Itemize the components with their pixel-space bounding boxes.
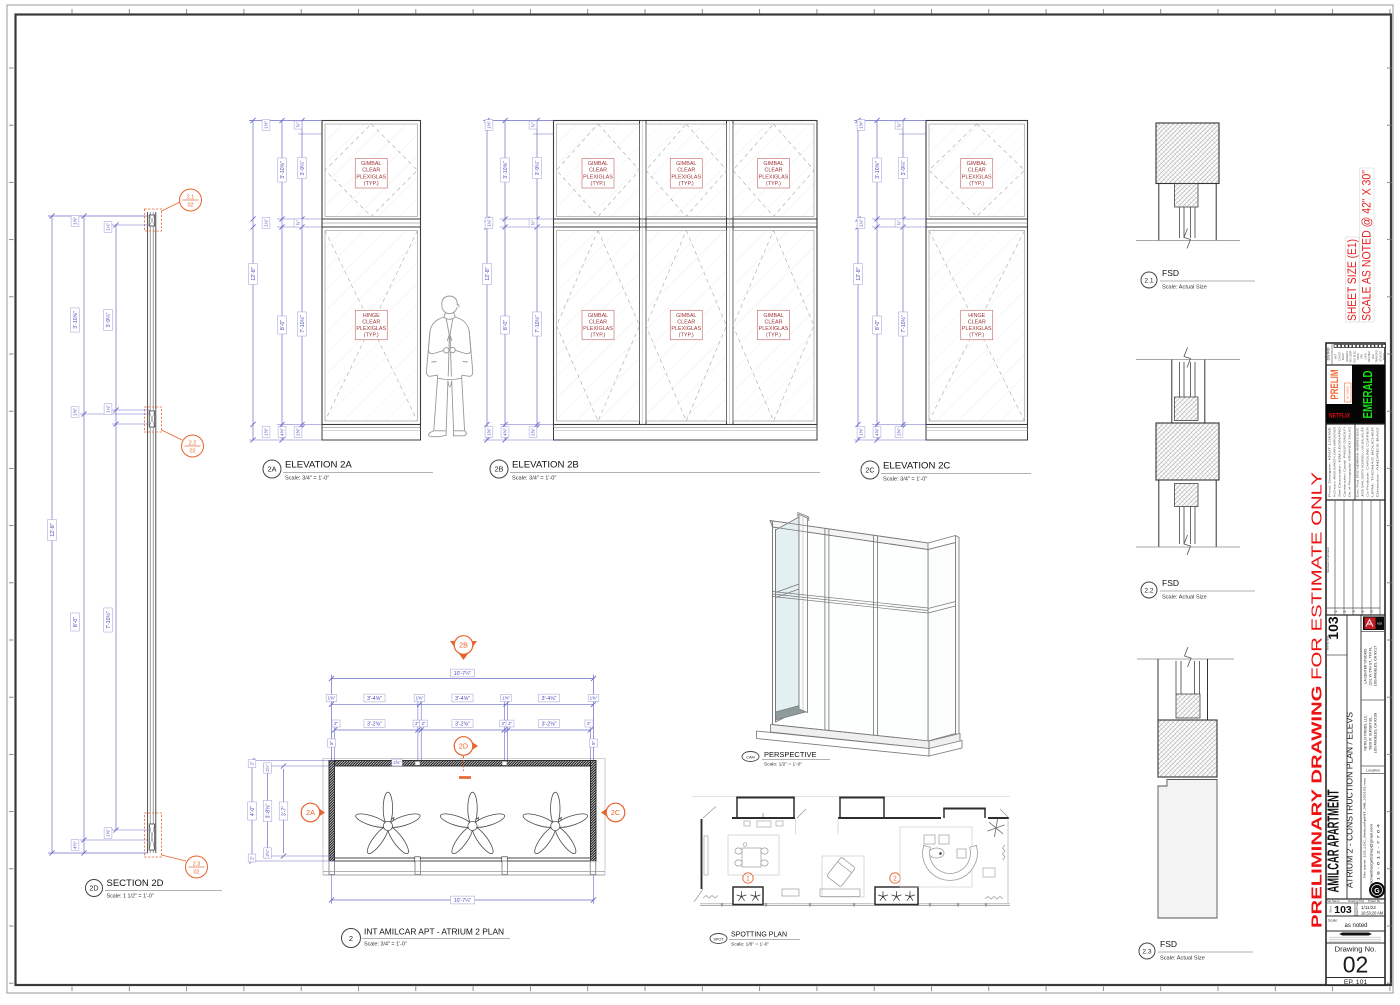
svg-text:8'-0": 8'-0" xyxy=(503,320,509,330)
svg-text:⅞": ⅞" xyxy=(897,122,902,128)
svg-text:CLEAR: CLEAR xyxy=(589,168,607,174)
svg-text:PLEXIGLAS: PLEXIGLAS xyxy=(759,326,789,332)
svg-text:Scale: 3/4" = 1'-0": Scale: 3/4" = 1'-0" xyxy=(512,476,556,482)
svg-text:ELEVATION 2B: ELEVATION 2B xyxy=(512,460,579,471)
svg-text:2": 2" xyxy=(334,721,338,726)
svg-text:2⅝": 2⅝" xyxy=(531,428,536,436)
svg-text:Scale:: Scale: xyxy=(1328,919,1338,923)
svg-text:Scale: 1/2" = 1'-0": Scale: 1/2" = 1'-0" xyxy=(764,762,802,768)
svg-text:as noted: as noted xyxy=(1344,923,1367,929)
svg-text:ART: ART xyxy=(1334,354,1338,360)
svg-text:3: 3 xyxy=(1352,611,1356,613)
svg-text:CLEAR: CLEAR xyxy=(968,319,986,325)
svg-text:3'-8⅝": 3'-8⅝" xyxy=(265,804,271,819)
svg-text:Set #: Set # xyxy=(1329,906,1333,913)
svg-text:1¼": 1¼" xyxy=(859,219,864,227)
svg-text:103: 103 xyxy=(1334,904,1352,916)
svg-text:GREENS: GREENS xyxy=(1345,351,1349,362)
svg-text:3'-2⅝": 3'-2⅝" xyxy=(455,721,470,727)
svg-text:8'-0": 8'-0" xyxy=(280,320,286,330)
svg-text:INT AMILCAR APT - ATRIUM 2 PLA: INT AMILCAR APT - ATRIUM 2 PLAN xyxy=(364,927,504,937)
svg-text:2D: 2D xyxy=(459,742,468,751)
svg-text:PLEXIGLAS: PLEXIGLAS xyxy=(962,174,992,180)
svg-text:10'-7¼": 10'-7¼" xyxy=(454,671,472,677)
svg-text:2": 2" xyxy=(422,721,426,726)
svg-text:Set Number: Set Number xyxy=(1326,635,1330,650)
svg-text:CLEAR: CLEAR xyxy=(362,168,380,174)
svg-text:02: 02 xyxy=(194,870,200,876)
svg-text:2": 2" xyxy=(508,721,512,726)
svg-text:3'-7": 3'-7" xyxy=(281,806,287,816)
svg-text:CAM: CAM xyxy=(746,755,754,759)
svg-text:2": 2" xyxy=(415,721,419,726)
svg-text:⅞": ⅞" xyxy=(531,220,536,226)
svg-text:5808 W. SUNSET BL.: 5808 W. SUNSET BL. xyxy=(1369,716,1373,749)
svg-text:1⅝": 1⅝" xyxy=(106,829,111,837)
svg-text:SPOTTING PLAN: SPOTTING PLAN xyxy=(731,932,787,939)
svg-text:PLEXIGLAS: PLEXIGLAS xyxy=(671,174,701,180)
svg-text:2: 2 xyxy=(1343,611,1347,613)
svg-text:Exec. Prod: ERIC NEWMAN, ANDR: Exec. Prod: ERIC NEWMAN, ANDRES BAIZ, xyxy=(1356,427,1360,497)
svg-text:VFX: VFX xyxy=(1360,354,1364,359)
svg-text:1⅝": 1⅝" xyxy=(73,217,78,225)
svg-text:PLEXIGLAS: PLEXIGLAS xyxy=(356,174,386,180)
svg-text:PLEXIGLAS: PLEXIGLAS xyxy=(759,174,789,180)
svg-text:(TYP.): (TYP.) xyxy=(364,333,379,339)
svg-text:(TYP.): (TYP.) xyxy=(766,181,781,187)
svg-text:michaelbudgebishop@gmail.com: michaelbudgebishop@gmail.com xyxy=(1370,824,1374,886)
svg-text:2.3: 2.3 xyxy=(193,862,201,868)
svg-text:Dir. of Photography: ARMANDO: Dir. of Photography: ARMANDO SALAS xyxy=(1347,427,1351,497)
svg-text:7'-10½": 7'-10½" xyxy=(105,611,112,629)
svg-text:2: 2 xyxy=(349,934,353,943)
svg-text:LOS ANGELES, CA 90028: LOS ANGELES, CA 90028 xyxy=(1374,713,1378,753)
svg-text:Location: Location xyxy=(1366,769,1380,773)
svg-text:1201 W. 5TH ST., 7TH FL.: 1201 W. 5TH ST., 7TH FL. xyxy=(1369,646,1373,686)
svg-text:7'-10½": 7'-10½" xyxy=(299,315,306,333)
svg-text:LA CENTER STUDIOS: LA CENTER STUDIOS xyxy=(1364,648,1368,684)
svg-text:Construction Coord: PHILIP GI: Construction Coord: PHILIP GINOLFI xyxy=(1342,427,1346,497)
svg-text:10:53:20 AM: 10:53:20 AM xyxy=(1361,910,1383,915)
svg-text:1⅝": 1⅝" xyxy=(264,428,269,436)
svg-text:2.1: 2.1 xyxy=(187,195,195,201)
svg-text:2.2: 2.2 xyxy=(1144,588,1153,595)
svg-text:Scale: Actual Size: Scale: Actual Size xyxy=(1162,285,1207,291)
svg-text:SPOT: SPOT xyxy=(713,937,724,941)
svg-text:⅞": ⅞" xyxy=(296,220,301,226)
svg-text:HINGE: HINGE xyxy=(968,313,985,319)
svg-text:PLEXIGLAS: PLEXIGLAS xyxy=(671,326,701,332)
svg-text:PERSPECTIVE: PERSPECTIVE xyxy=(764,750,817,759)
svg-text:CLEAR: CLEAR xyxy=(589,319,607,325)
svg-text:GIMBAL: GIMBAL xyxy=(588,161,608,167)
svg-text:HINGE: HINGE xyxy=(363,313,380,319)
svg-text:Prod. Designer: KNUT LOEWE: Prod. Designer: KNUT LOEWE xyxy=(1327,427,1331,497)
svg-text:PLEXIGLAS: PLEXIGLAS xyxy=(962,326,992,332)
svg-text:⅞": ⅞" xyxy=(296,122,301,128)
svg-text:1⅝": 1⅝" xyxy=(590,696,598,701)
svg-text:1⅝": 1⅝" xyxy=(502,696,510,701)
svg-text:7'-10½": 7'-10½" xyxy=(534,315,541,333)
svg-text:File name: 103_LOC_AmilcarAptI: File name: 103_LOC_AmilcarAptINT_MB_2201… xyxy=(1363,777,1367,878)
svg-text:3'-2⅝": 3'-2⅝" xyxy=(542,721,557,727)
svg-text:3'-9¼": 3'-9¼" xyxy=(106,313,112,328)
svg-text:RIG GRIP: RIG GRIP xyxy=(1349,350,1353,362)
svg-text:GIMBAL: GIMBAL xyxy=(676,313,696,319)
svg-text:2½": 2½" xyxy=(265,849,270,857)
svg-text:SECTION 2D: SECTION 2D xyxy=(107,878,164,889)
svg-text:Drawn By: Drawn By xyxy=(1368,899,1381,903)
svg-text:LOC: LOC xyxy=(1371,354,1375,359)
svg-text:Scale: 1 1/2" = 1'-0": Scale: 1 1/2" = 1'-0" xyxy=(107,894,154,900)
svg-text:2.2: 2.2 xyxy=(189,441,197,447)
svg-text:2⅝": 2⅝" xyxy=(296,428,301,436)
svg-text:2": 2" xyxy=(250,856,255,860)
svg-text:Date/Time: Date/Time xyxy=(1355,903,1359,916)
svg-text:(TYP.): (TYP.) xyxy=(679,333,694,339)
svg-text:SET DEC: SET DEC xyxy=(1367,351,1371,362)
svg-text:5": 5" xyxy=(329,741,334,745)
svg-text:GIMBAL: GIMBAL xyxy=(763,313,783,319)
svg-text:2": 2" xyxy=(587,721,591,726)
svg-text:ATRIUM 2 - CONSTRUCTION PLAN /: ATRIUM 2 - CONSTRUCTION PLAN / ELEVS xyxy=(1346,712,1355,888)
svg-text:AMILCAR APARTMENT: AMILCAR APARTMENT xyxy=(1326,789,1343,892)
svg-text:1⅝": 1⅝" xyxy=(416,696,424,701)
svg-text:EP. 101: EP. 101 xyxy=(1344,979,1368,986)
svg-text:Director: ANDRES BAIZ: Director: ANDRES BAIZ xyxy=(1376,427,1380,497)
svg-text:4½": 4½" xyxy=(73,841,78,849)
svg-text:2B: 2B xyxy=(459,641,468,650)
svg-text:3'-10⅝": 3'-10⅝" xyxy=(73,311,79,329)
svg-text:PAINT: PAINT xyxy=(1341,352,1345,360)
svg-text:2⅝": 2⅝" xyxy=(897,428,902,436)
svg-text:12'-8": 12'-8" xyxy=(856,267,862,280)
svg-text:GIMBAL: GIMBAL xyxy=(676,161,696,167)
svg-text:1⅝": 1⅝" xyxy=(264,121,269,129)
svg-text:Scale: Actual Size: Scale: Actual Size xyxy=(1162,595,1207,601)
svg-text:5: 5 xyxy=(1370,611,1374,613)
svg-text:(TYP.): (TYP.) xyxy=(679,181,694,187)
svg-text:1¼": 1¼" xyxy=(264,219,269,227)
svg-text:2A: 2A xyxy=(306,808,315,817)
svg-text:Revision Comment: Revision Comment xyxy=(1326,547,1330,573)
svg-text:PLEXIGLAS: PLEXIGLAS xyxy=(356,326,386,332)
svg-text:UPM: THOMAS BOUCHER: UPM: THOMAS BOUCHER xyxy=(1371,425,1375,497)
svg-text:CLEAR: CLEAR xyxy=(677,168,695,174)
svg-text:CAM: CAM xyxy=(1363,354,1367,360)
svg-text:2⅝": 2⅝" xyxy=(393,760,401,765)
svg-text:FSD: FSD xyxy=(1160,939,1177,949)
svg-text:TRANSPO: TRANSPO xyxy=(1375,350,1379,363)
svg-text:2½": 2½" xyxy=(265,764,270,772)
svg-text:⅞": ⅞" xyxy=(531,122,536,128)
svg-text:1¼": 1¼" xyxy=(106,223,111,231)
svg-text:02: 02 xyxy=(188,203,194,209)
svg-text:3'-9¼": 3'-9¼" xyxy=(535,161,541,176)
svg-text:ELEVATION 2A: ELEVATION 2A xyxy=(285,460,352,471)
svg-text:CLEAR: CLEAR xyxy=(765,168,783,174)
svg-text:4⅝": 4⅝" xyxy=(503,428,508,436)
svg-text:STUNTS: STUNTS xyxy=(1378,351,1382,362)
svg-text:NETFLIX PRODS. LLC: NETFLIX PRODS. LLC xyxy=(1364,715,1368,751)
svg-text:GIMBAL: GIMBAL xyxy=(967,161,987,167)
svg-text:SPFX: SPFX xyxy=(1356,353,1360,360)
svg-text:2.1: 2.1 xyxy=(1144,278,1153,285)
svg-text:02: 02 xyxy=(190,449,196,455)
svg-text:CLEAR: CLEAR xyxy=(677,319,695,325)
svg-text:Art Directors: JAKUB DURKOTH,: Art Directors: JAKUB DURKOTH, GARY WARCH… xyxy=(1332,426,1336,497)
svg-text:1¼": 1¼" xyxy=(106,405,111,413)
svg-text:3'-9¼": 3'-9¼" xyxy=(901,161,907,176)
svg-text:1⅝": 1⅝" xyxy=(487,121,492,129)
svg-text:PRELIM: PRELIM xyxy=(1329,370,1341,400)
svg-text:3'-4⅝": 3'-4⅝" xyxy=(542,696,557,702)
svg-text:2.3: 2.3 xyxy=(1142,949,1151,956)
svg-text:7'-10½": 7'-10½" xyxy=(900,315,907,333)
svg-text:⅞": ⅞" xyxy=(897,220,902,226)
svg-text:2": 2" xyxy=(502,721,506,726)
svg-text:3'-2⅝": 3'-2⅝" xyxy=(367,721,382,727)
svg-text:PLEXIGLAS: PLEXIGLAS xyxy=(583,174,613,180)
svg-text:(TYP.): (TYP.) xyxy=(766,333,781,339)
svg-text:GIMBAL: GIMBAL xyxy=(588,313,608,319)
svg-text:10'-7¼": 10'-7¼" xyxy=(454,898,472,904)
svg-text:3'-10⅝": 3'-10⅝" xyxy=(503,161,509,179)
svg-text:Set Name: Set Name xyxy=(1327,899,1340,903)
svg-text:JOSE IVAN, DEPTH RODRIGO, LUIS: JOSE IVAN, DEPTH RODRIGO, LUIS BALAGUER xyxy=(1361,426,1365,497)
svg-text:LOS ANGELES, CA 90017: LOS ANGELES, CA 90017 xyxy=(1374,646,1378,686)
svg-text:12'-8": 12'-8" xyxy=(251,267,257,280)
svg-text:CONST: CONST xyxy=(1337,352,1341,361)
svg-text:FSD: FSD xyxy=(1162,578,1179,588)
svg-text:(TYP.): (TYP.) xyxy=(591,181,606,187)
svg-text:3'-9¼": 3'-9¼" xyxy=(300,161,306,176)
svg-text:GIMBAL: GIMBAL xyxy=(763,161,783,167)
svg-text:rev 1/10/22: rev 1/10/22 xyxy=(1345,385,1349,399)
svg-text:DISTRO: DISTRO xyxy=(1327,347,1331,360)
svg-text:8 1 8 - 6 1 2 - 7 7 6 4: 8 1 8 - 6 1 2 - 7 7 6 4 xyxy=(1377,824,1381,886)
svg-text:CLEAR: CLEAR xyxy=(362,319,380,325)
svg-text:(TYP.): (TYP.) xyxy=(969,333,984,339)
svg-text:2D: 2D xyxy=(90,886,99,893)
svg-text:3'-4⅝": 3'-4⅝" xyxy=(367,696,382,702)
svg-text:(TYP.): (TYP.) xyxy=(969,181,984,187)
svg-text:4⅝": 4⅝" xyxy=(875,428,880,436)
svg-text:CLEAR: CLEAR xyxy=(765,319,783,325)
svg-text:1⅝": 1⅝" xyxy=(328,696,336,701)
svg-text:SCALE AS NOTED @ 42" X 30": SCALE AS NOTED @ 42" X 30" xyxy=(1362,170,1374,321)
svg-text:ELEVATION 2C: ELEVATION 2C xyxy=(883,461,950,472)
svg-text:1⅝": 1⅝" xyxy=(487,428,492,436)
svg-text:FSD: FSD xyxy=(1162,268,1179,278)
svg-text:2C: 2C xyxy=(865,466,874,475)
svg-text:G: G xyxy=(1374,888,1380,895)
svg-text:8'-0": 8'-0" xyxy=(73,617,79,627)
svg-text:2B: 2B xyxy=(495,465,504,474)
svg-text:RIG ELEC: RIG ELEC xyxy=(1352,350,1356,362)
svg-text:Scale: 3/4" = 1'-0": Scale: 3/4" = 1'-0" xyxy=(883,477,927,483)
svg-text:PRELIMINARY DRAWING FOR ESTIMA: PRELIMINARY DRAWING FOR ESTIMATE ONLY xyxy=(1310,472,1326,928)
svg-text:(TYP.): (TYP.) xyxy=(591,333,606,339)
svg-text:1/11/22: 1/11/22 xyxy=(1361,905,1376,910)
svg-text:12'-8": 12'-8" xyxy=(50,523,56,536)
svg-text:EMERALD: EMERALD xyxy=(1361,371,1375,419)
svg-text:Co-Producer: CAROLINE CURRIER: Co-Producer: CAROLINE CURRIER xyxy=(1366,426,1370,497)
svg-text:1⅝": 1⅝" xyxy=(859,121,864,129)
svg-text:4'-0": 4'-0" xyxy=(250,806,256,816)
svg-text:PROD: PROD xyxy=(1382,353,1386,361)
svg-text:GIMBAL: GIMBAL xyxy=(361,161,381,167)
svg-text:3'-10⅝": 3'-10⅝" xyxy=(280,161,286,179)
svg-text:PLEXIGLAS: PLEXIGLAS xyxy=(583,326,613,332)
svg-text:Scale: Actual Size: Scale: Actual Size xyxy=(1160,956,1205,962)
svg-text:AD3: AD3 xyxy=(1377,622,1383,626)
svg-text:Drawing Title: Drawing Title xyxy=(1348,899,1365,903)
svg-text:Scale: 3/4" = 1'-0": Scale: 3/4" = 1'-0" xyxy=(285,476,329,482)
svg-text:Scale: 1/8" = 1'-0": Scale: 1/8" = 1'-0" xyxy=(731,942,769,948)
svg-text:1: 1 xyxy=(1334,611,1338,613)
svg-text:3'-4⅝": 3'-4⅝" xyxy=(455,696,470,702)
svg-text:1¼": 1¼" xyxy=(487,219,492,227)
svg-text:2": 2" xyxy=(250,761,255,765)
svg-text:5": 5" xyxy=(591,741,596,745)
svg-text:Set Decorator: KIM LEONARD: Set Decorator: KIM LEONARD xyxy=(1337,426,1341,497)
svg-text:CLEAR: CLEAR xyxy=(968,168,986,174)
svg-text:2A: 2A xyxy=(268,465,277,474)
svg-text:4: 4 xyxy=(1361,611,1365,613)
svg-text:1⅝": 1⅝" xyxy=(859,428,864,436)
svg-text:4⅝": 4⅝" xyxy=(280,428,285,436)
svg-text:3'-10⅝": 3'-10⅝" xyxy=(875,161,881,179)
svg-text:2C: 2C xyxy=(611,808,620,817)
svg-text:1: 1 xyxy=(746,875,750,882)
svg-text:Scale: 3/4" = 1'-0": Scale: 3/4" = 1'-0" xyxy=(364,942,407,948)
svg-text:02: 02 xyxy=(1343,952,1369,978)
svg-text:12'-8": 12'-8" xyxy=(485,267,491,280)
svg-text:2: 2 xyxy=(893,875,897,882)
svg-text:8'-0": 8'-0" xyxy=(875,320,881,330)
svg-text:NETFLIX: NETFLIX xyxy=(1329,413,1351,420)
svg-text:1⅝": 1⅝" xyxy=(73,408,78,416)
svg-text:(TYP.): (TYP.) xyxy=(364,181,379,187)
svg-text:SHEET SIZE (E1): SHEET SIZE (E1) xyxy=(1347,239,1359,321)
